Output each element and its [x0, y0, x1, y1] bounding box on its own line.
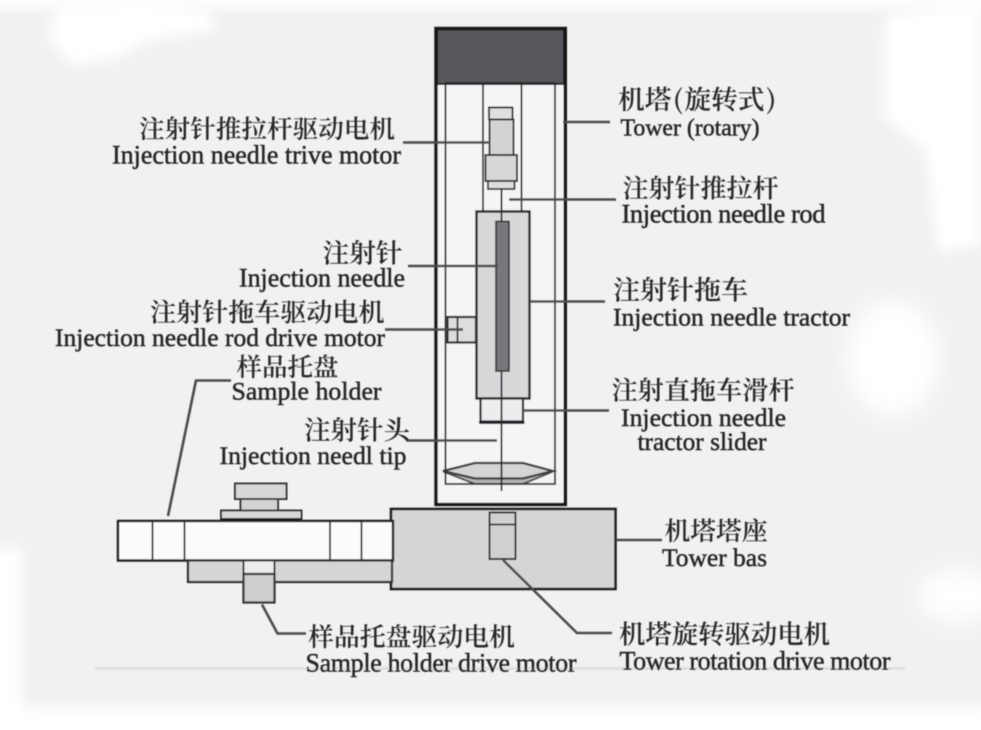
svg-text:Injection needle tractor: Injection needle tractor	[613, 303, 850, 332]
svg-text:tractor slider: tractor slider	[638, 428, 768, 456]
svg-text:Injection needle: Injection needle	[239, 264, 405, 293]
svg-text:Injection needle trive motor: Injection needle trive motor	[112, 141, 401, 170]
svg-text:Sample holder: Sample holder	[232, 377, 382, 406]
svg-text:Tower (rotary): Tower (rotary)	[621, 116, 760, 142]
svg-text:Tower rotation drive motor: Tower rotation drive motor	[620, 647, 891, 676]
svg-text:Tower bas: Tower bas	[662, 543, 767, 572]
svg-text:Sample holder drive motor: Sample holder drive motor	[306, 649, 577, 678]
svg-text:Injection needl tip: Injection needl tip	[220, 441, 407, 470]
svg-text:Injection needle rod drive mot: Injection needle rod drive motor	[55, 323, 386, 352]
svg-text:Injection needle rod: Injection needle rod	[622, 199, 826, 229]
